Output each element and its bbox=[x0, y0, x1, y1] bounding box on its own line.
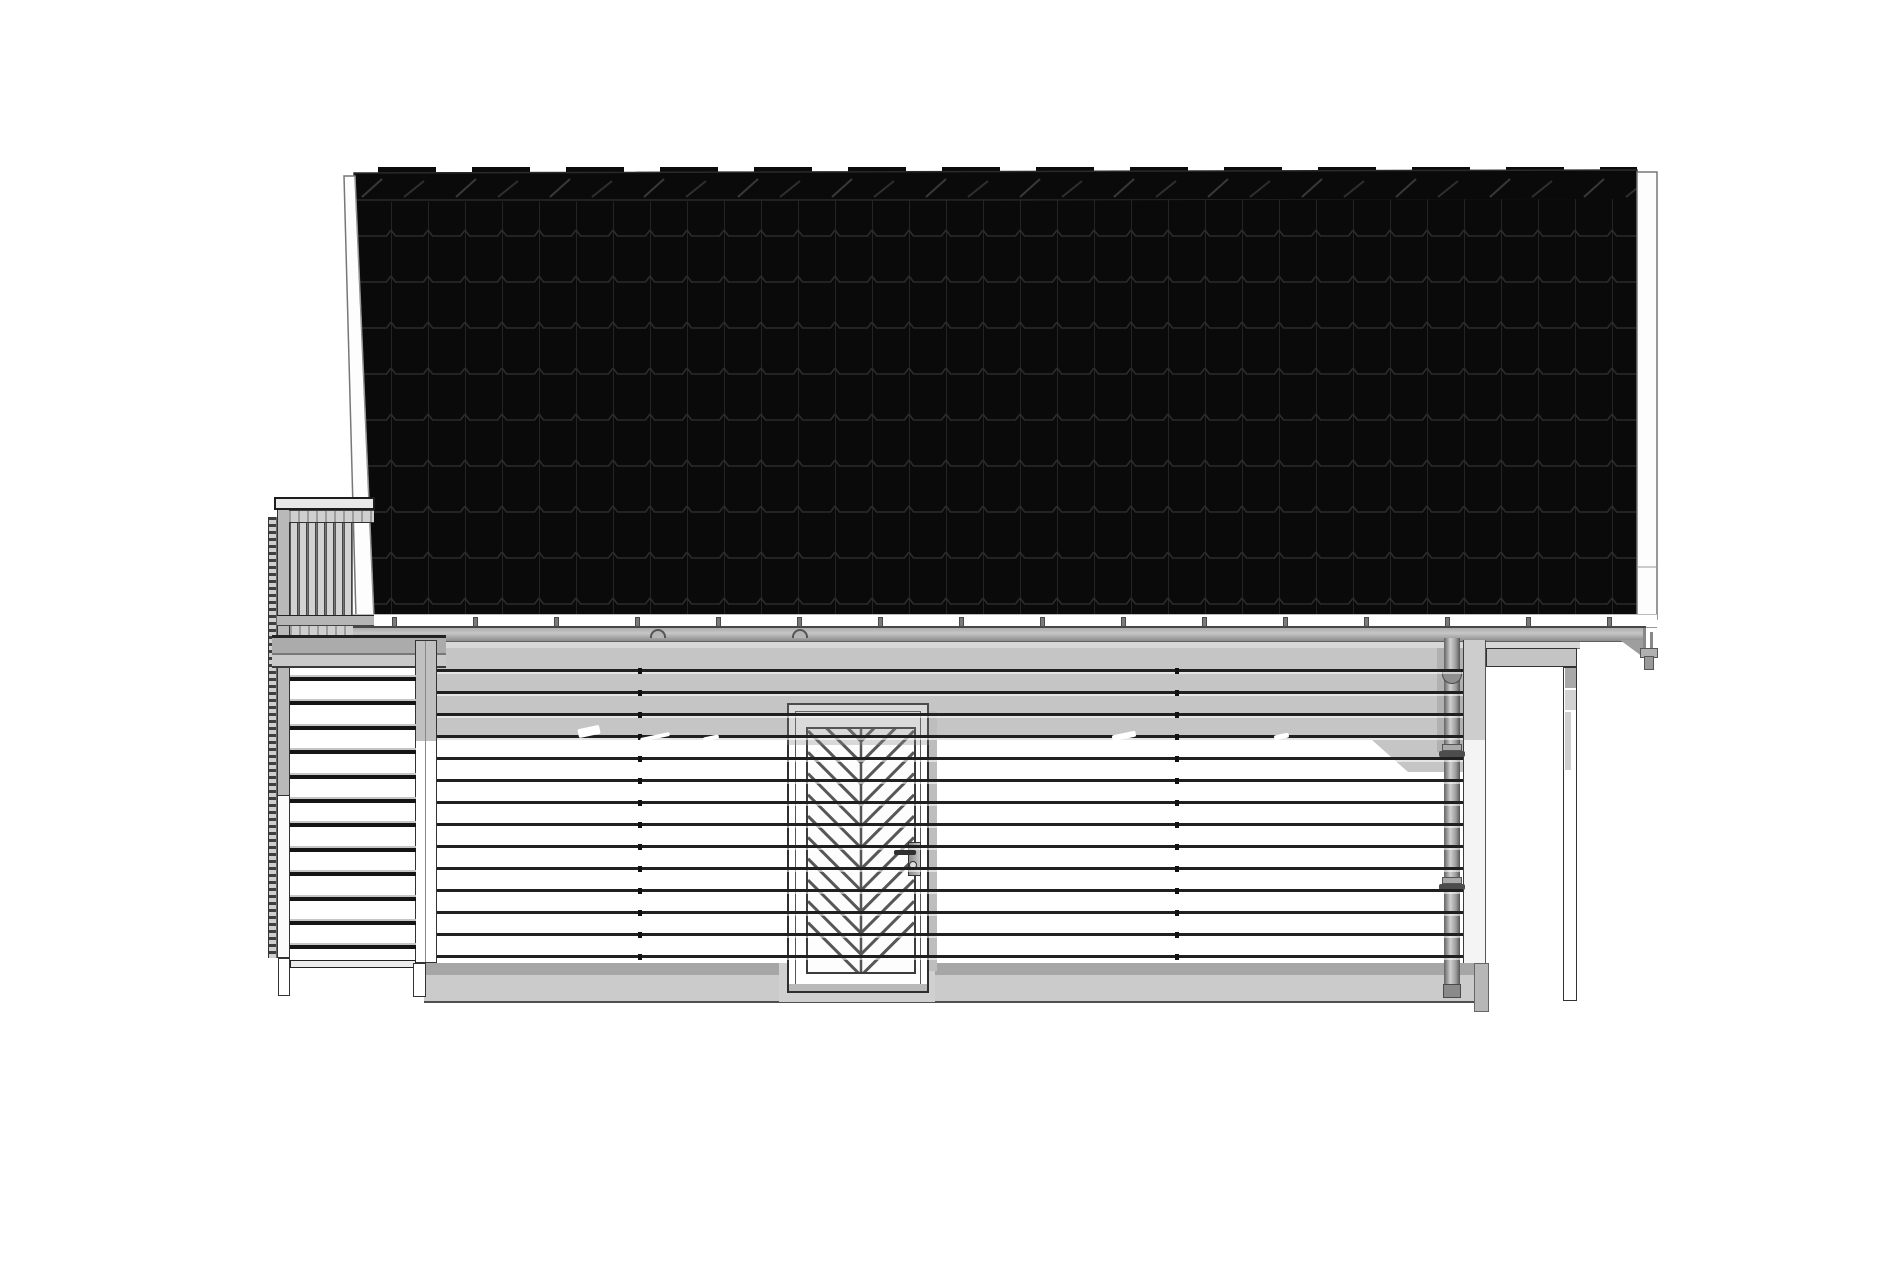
siding-line bbox=[437, 691, 1463, 694]
bay-post-shadow-strip bbox=[1565, 712, 1571, 770]
siding-line bbox=[437, 823, 1463, 826]
gutter-bracket bbox=[878, 617, 883, 627]
downpipe-joint-collar-lower bbox=[1442, 877, 1462, 884]
siding-joint-tick bbox=[638, 954, 642, 960]
door-reveal-shadow bbox=[929, 711, 937, 971]
stair-tread bbox=[290, 799, 416, 803]
stair-tread bbox=[290, 945, 416, 949]
siding-line bbox=[437, 713, 1463, 716]
siding-joint-tick bbox=[1175, 734, 1179, 740]
stair-tread bbox=[290, 750, 416, 754]
siding-joint-tick bbox=[638, 690, 642, 696]
wall-shadow-step-diagonal bbox=[1372, 740, 1408, 772]
siding-line bbox=[437, 889, 1463, 892]
stair-tread bbox=[290, 897, 416, 901]
siding-joint-tick bbox=[1175, 910, 1179, 916]
siding-line bbox=[437, 955, 1463, 958]
stair-tread bbox=[290, 823, 416, 827]
gutter-bracket bbox=[959, 617, 964, 627]
siding-joint-tick bbox=[638, 822, 642, 828]
balcony-baluster bbox=[299, 523, 307, 615]
siding-joint-tick bbox=[1175, 954, 1179, 960]
foundation-corner-block bbox=[1474, 963, 1489, 1012]
siding-joint-tick bbox=[638, 668, 642, 674]
siding-joint-tick bbox=[638, 712, 642, 718]
balcony-rail-subband bbox=[289, 510, 374, 523]
stair-foot-right bbox=[413, 963, 426, 997]
gutter-bracket bbox=[392, 617, 397, 627]
bay-post-shadow-mid bbox=[1565, 690, 1576, 710]
siding-joint-tick bbox=[1175, 844, 1179, 850]
ground-line bbox=[424, 1001, 1474, 1003]
gutter-bracket bbox=[1040, 617, 1045, 627]
gutter-end-hanger-a bbox=[1643, 628, 1646, 648]
foundation-body bbox=[424, 975, 1474, 1002]
gutter-bracket bbox=[1202, 617, 1207, 627]
siding-joint-tick bbox=[1175, 888, 1179, 894]
gutter-bracket bbox=[1283, 617, 1288, 627]
siding-joint-tick bbox=[1175, 756, 1179, 762]
siding-line bbox=[437, 845, 1463, 848]
balcony-baluster bbox=[344, 523, 352, 615]
siding-joint-tick bbox=[1175, 866, 1179, 872]
elevation-drawing-canvas bbox=[0, 0, 1900, 1266]
siding-joint-tick bbox=[638, 778, 642, 784]
siding-joint-tick bbox=[1175, 778, 1179, 784]
siding-joint-tick bbox=[638, 844, 642, 850]
downpipe-joint-collar-upper bbox=[1442, 744, 1462, 751]
balcony-post-left-lower bbox=[277, 796, 290, 958]
siding-joint-tick bbox=[1175, 712, 1179, 718]
stair-post-right bbox=[415, 640, 437, 963]
balcony-baluster bbox=[308, 523, 316, 615]
siding-joint-tick bbox=[638, 756, 642, 762]
stair-stringer-edge bbox=[268, 517, 277, 958]
roof-tile-field bbox=[357, 199, 1637, 615]
stair-post-right-joint-line bbox=[425, 641, 426, 962]
gutter-bracket bbox=[1445, 617, 1450, 627]
siding-joint-tick bbox=[1175, 932, 1179, 938]
balcony-handrail bbox=[274, 497, 375, 510]
siding-line bbox=[437, 911, 1463, 914]
stair-tread bbox=[290, 677, 416, 681]
door-shadow-tint bbox=[787, 703, 929, 745]
siding-joint-tick bbox=[1175, 690, 1179, 696]
siding-joint-tick bbox=[1175, 668, 1179, 674]
gutter-bracket bbox=[473, 617, 478, 627]
bargeboard-right bbox=[1637, 172, 1657, 619]
siding-joint-tick bbox=[638, 888, 642, 894]
gutter-bracket bbox=[554, 617, 559, 627]
gutter-bracket bbox=[1607, 617, 1612, 627]
siding-line bbox=[437, 757, 1463, 760]
gutter-bracket bbox=[1121, 617, 1126, 627]
foundation-top-strip-right bbox=[935, 963, 1474, 975]
siding-joint-tick bbox=[638, 800, 642, 806]
gutter-bracket bbox=[1364, 617, 1369, 627]
bay-post-shadow-top bbox=[1565, 668, 1576, 688]
stair-tread bbox=[290, 726, 416, 730]
downpipe-shoe bbox=[1443, 984, 1461, 998]
siding-line bbox=[437, 779, 1463, 782]
siding-joint-tick bbox=[1175, 800, 1179, 806]
roof bbox=[340, 165, 1662, 665]
stair-tread bbox=[290, 701, 416, 705]
gutter-bracket bbox=[716, 617, 721, 627]
gutter-outlet-right-pipe bbox=[1644, 656, 1654, 670]
gutter-bracket bbox=[635, 617, 640, 627]
siding-joint-tick bbox=[638, 932, 642, 938]
balcony-bottom-rail bbox=[277, 615, 374, 626]
door-sill-shadow bbox=[789, 984, 927, 991]
stair-tread bbox=[290, 872, 416, 876]
stair-bottom-rail bbox=[290, 960, 416, 968]
gutter-bracket bbox=[1526, 617, 1531, 627]
balcony-baluster-stubs bbox=[290, 626, 353, 635]
siding-joint-tick bbox=[638, 866, 642, 872]
stair-tread bbox=[290, 921, 416, 925]
balcony-baluster bbox=[326, 523, 334, 615]
balcony-balusters bbox=[290, 523, 353, 615]
gutter-union-clip bbox=[792, 629, 808, 638]
door-handle-lever bbox=[894, 850, 916, 855]
gutter-union-clip bbox=[650, 629, 666, 638]
balcony-baluster bbox=[317, 523, 325, 615]
balcony-baluster bbox=[335, 523, 343, 615]
siding-line bbox=[437, 801, 1463, 804]
stair-foot-left bbox=[278, 958, 290, 996]
balcony-baluster bbox=[290, 523, 298, 615]
siding-joint-tick bbox=[1175, 822, 1179, 828]
gutter-bracket bbox=[797, 617, 802, 627]
siding-joint-tick bbox=[638, 910, 642, 916]
siding-line bbox=[437, 933, 1463, 936]
wall-corner-trim bbox=[1463, 640, 1486, 963]
bay-header-beam bbox=[1486, 648, 1577, 667]
stair-tread bbox=[290, 848, 416, 852]
siding-line bbox=[437, 867, 1463, 870]
foundation-top-strip-left bbox=[424, 963, 779, 975]
stair-tread bbox=[290, 775, 416, 779]
siding-line bbox=[437, 669, 1463, 672]
